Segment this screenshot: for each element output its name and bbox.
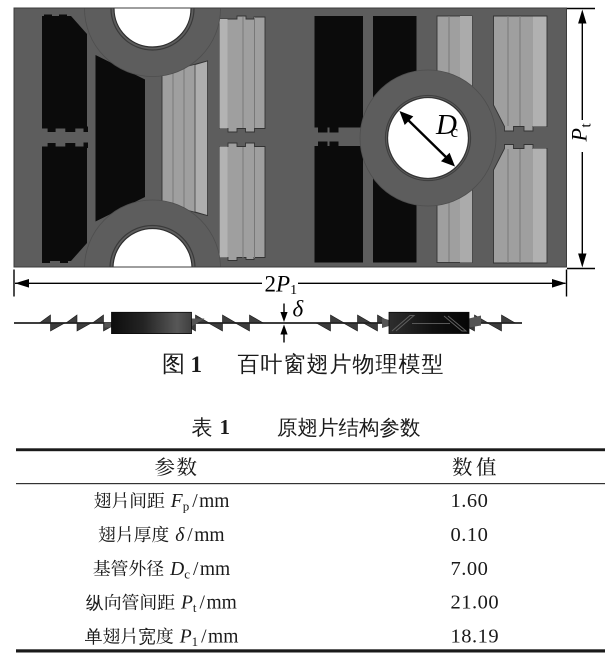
svg-text:Fp/mm: Fp/mm: [170, 491, 230, 514]
svg-text:Dc/mm: Dc/mm: [169, 559, 230, 582]
svg-text:δ: δ: [293, 297, 304, 322]
svg-text:0.10: 0.10: [451, 524, 489, 546]
svg-text:P1/mm: P1/mm: [179, 627, 239, 650]
svg-text:7.00: 7.00: [451, 558, 489, 580]
svg-text:21.00: 21.00: [451, 592, 500, 614]
svg-text:18.19: 18.19: [451, 626, 500, 648]
svg-text:1: 1: [191, 352, 203, 377]
svg-text:c: c: [451, 122, 459, 141]
svg-text:δ/mm: δ/mm: [175, 525, 224, 546]
svg-text:P: P: [567, 128, 592, 142]
svg-text:t: t: [579, 123, 595, 128]
svg-text:Pt/mm: Pt/mm: [180, 593, 237, 616]
svg-text:2P1: 2P1: [265, 272, 298, 299]
svg-text:1: 1: [220, 415, 231, 439]
svg-text:1.60: 1.60: [451, 490, 489, 512]
